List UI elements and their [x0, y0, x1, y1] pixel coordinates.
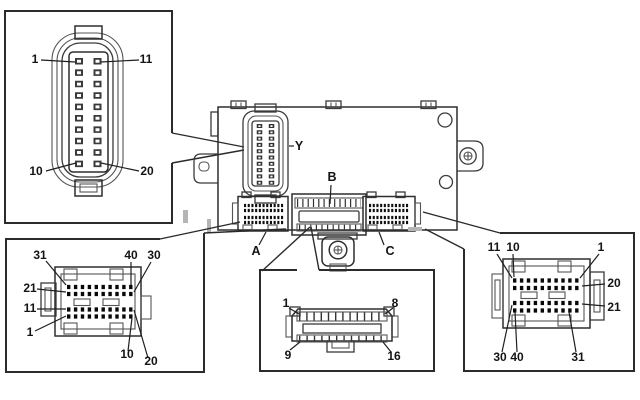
pin-label-1: 1	[283, 296, 290, 310]
pin-label-31: 31	[571, 350, 585, 364]
leader-line	[290, 342, 300, 350]
pin-label-30: 30	[493, 350, 507, 364]
pin-label-10: 10	[120, 347, 134, 361]
leader-line	[513, 254, 514, 277]
pin-label-11: 11	[140, 52, 153, 66]
leader-line	[515, 312, 517, 352]
leader-line	[101, 60, 139, 62]
pin-label-31: 31	[33, 248, 47, 262]
module-connector-b	[292, 194, 366, 235]
pin-label-20: 20	[140, 164, 154, 178]
control-module: Y A B	[183, 101, 483, 271]
micro-text-mark	[183, 210, 188, 223]
connector-y-detail	[52, 26, 123, 196]
connector-label-c: C	[385, 244, 394, 258]
micro-text-mark	[207, 219, 211, 232]
pin-label-1: 1	[27, 325, 34, 339]
pin-label-16: 16	[387, 349, 401, 363]
callout-box-top-left: 1 11 10 20	[5, 11, 244, 223]
wiring-connector-diagram: 1 11 10 20	[0, 0, 640, 400]
pin-label-20: 20	[144, 354, 158, 368]
leader-line	[41, 60, 75, 62]
mounting-ear-right	[457, 141, 483, 171]
pin-label-10: 10	[506, 240, 520, 254]
leader-line	[379, 232, 384, 245]
callout-wedge-top-left	[172, 133, 244, 163]
module-left-tab	[211, 112, 218, 136]
leader-line	[569, 312, 576, 352]
pin-label-21: 21	[23, 281, 37, 295]
pin-label-1: 1	[32, 52, 39, 66]
diagram-canvas: 1 11 10 20	[0, 0, 640, 400]
leader-line	[330, 185, 331, 204]
pin-label-30: 30	[147, 248, 161, 262]
module-connector-a	[233, 192, 289, 231]
module-connector-c	[363, 192, 421, 231]
pin-label-10: 10	[29, 164, 43, 178]
screw-head-icon	[329, 241, 347, 259]
callout-box-bottom-left: 31 40 30 21 11 1 10 20	[6, 222, 286, 372]
pin-label-11: 11	[488, 240, 501, 254]
module-hole	[440, 176, 453, 189]
pin-label-9: 9	[285, 348, 292, 362]
leader-line	[46, 163, 76, 171]
pin-label-40: 40	[124, 248, 138, 262]
connector-a-detail	[41, 267, 151, 336]
pin-label-40: 40	[510, 350, 524, 364]
connector-label-b: B	[327, 170, 336, 184]
leader-line	[46, 261, 66, 285]
connector-label-y: Y	[295, 139, 304, 153]
callout-box-bottom-right: 11 10 1 20 21 30 40 31	[423, 212, 634, 371]
connector-label-a: A	[251, 244, 260, 258]
mounting-bracket	[318, 233, 357, 271]
connector-b-detail	[286, 307, 398, 352]
module-connector-y	[243, 104, 288, 203]
pin-label-21: 21	[607, 300, 621, 314]
callout-wedge-bottom-center	[262, 227, 319, 271]
pin-label-8: 8	[392, 296, 399, 310]
pin-label-1: 1	[598, 240, 605, 254]
leader-line	[101, 163, 139, 171]
module-hole	[438, 113, 452, 127]
pin-label-11: 11	[24, 301, 37, 315]
screw-head-icon	[460, 148, 476, 164]
micro-text-mark	[408, 227, 422, 231]
pin-label-20: 20	[607, 276, 621, 290]
